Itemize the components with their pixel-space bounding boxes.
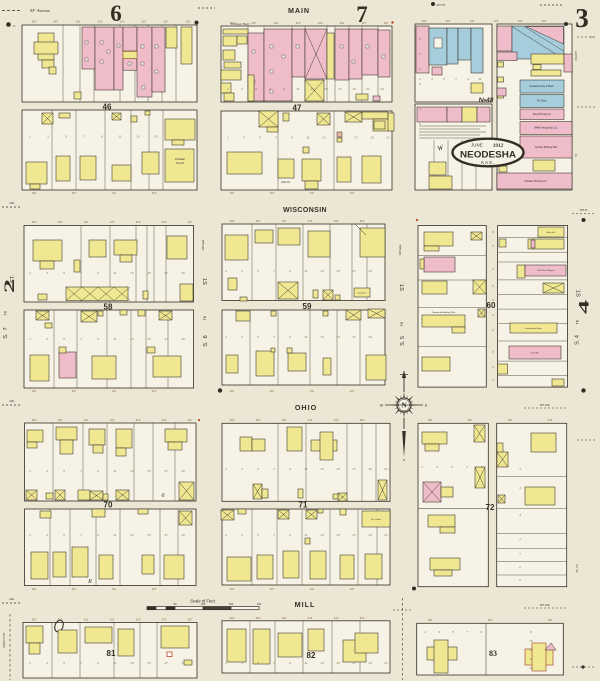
- svg-text:1: 1: [29, 661, 31, 665]
- svg-text:19: 19: [368, 335, 372, 339]
- svg-text:8: 8: [492, 328, 494, 332]
- svg-text:21: 21: [385, 136, 390, 140]
- svg-text:4: 4: [577, 299, 593, 314]
- svg-text:623: 623: [340, 21, 345, 25]
- svg-text:17: 17: [164, 661, 168, 665]
- svg-text:9: 9: [467, 77, 469, 81]
- svg-text:13: 13: [130, 337, 134, 341]
- svg-text:17: 17: [352, 269, 356, 273]
- svg-text:15: 15: [336, 661, 340, 665]
- svg-text:6: 6: [162, 493, 165, 499]
- svg-text:14: 14: [529, 657, 533, 661]
- svg-text:72: 72: [486, 503, 495, 512]
- svg-text:611: 611: [310, 390, 315, 393]
- svg-text:R: R: [87, 579, 92, 585]
- svg-text:603: 603: [230, 418, 235, 422]
- svg-text:Christian: Christian: [175, 157, 186, 161]
- svg-text:11: 11: [304, 533, 307, 537]
- svg-text:5: 5: [492, 298, 494, 302]
- svg-text:615: 615: [152, 588, 157, 591]
- svg-text:623: 623: [142, 20, 147, 24]
- svg-text:1: 1: [421, 465, 423, 469]
- svg-text:3: 3: [46, 533, 48, 537]
- svg-text:611: 611: [282, 219, 287, 223]
- svg-text:615: 615: [110, 418, 115, 422]
- svg-text:5: 5: [65, 135, 67, 139]
- svg-text:AVE.: AVE.: [9, 598, 15, 601]
- svg-text:Cyclone Bottling Wks: Cyclone Bottling Wks: [535, 146, 558, 149]
- svg-text:15: 15: [324, 87, 328, 91]
- svg-text:21: 21: [383, 533, 388, 537]
- svg-text:607: 607: [256, 418, 261, 422]
- svg-text:13: 13: [136, 135, 140, 139]
- svg-text:1: 1: [419, 77, 421, 81]
- svg-text:12: 12: [529, 648, 533, 652]
- svg-text:603: 603: [230, 219, 235, 223]
- svg-text:619: 619: [318, 21, 323, 25]
- svg-text:1: 1: [225, 269, 227, 273]
- svg-text:FOURTH: FOURTH: [575, 51, 578, 61]
- svg-text:627: 627: [164, 20, 169, 24]
- svg-text:TH: TH: [4, 310, 8, 315]
- svg-text:7: 7: [273, 661, 275, 665]
- svg-text:5: 5: [451, 465, 453, 469]
- svg-text:81: 81: [107, 649, 116, 658]
- svg-text:S. 5: S. 5: [400, 336, 406, 346]
- svg-text:9: 9: [492, 230, 494, 234]
- svg-text:603: 603: [230, 616, 235, 620]
- svg-text:Tel. Exch.: Tel. Exch.: [537, 100, 548, 103]
- svg-text:3: 3: [46, 337, 48, 341]
- svg-text:M° Avenue: M° Avenue: [29, 8, 50, 13]
- svg-text:19: 19: [368, 661, 372, 665]
- svg-text:2: 2: [518, 565, 521, 569]
- svg-text:82: 82: [307, 651, 316, 660]
- svg-text:603: 603: [32, 588, 37, 591]
- svg-text:11: 11: [113, 533, 116, 537]
- svg-text:1: 1: [29, 337, 31, 341]
- svg-text:619: 619: [518, 19, 523, 23]
- svg-text:7: 7: [466, 465, 468, 469]
- svg-text:3: 3: [519, 467, 521, 471]
- svg-text:3: 3: [575, 3, 589, 33]
- svg-text:607: 607: [72, 588, 77, 591]
- svg-text:15: 15: [147, 661, 151, 665]
- svg-text:4TH ST: 4TH ST: [437, 4, 446, 7]
- svg-text:s: s: [403, 457, 405, 462]
- svg-text:21: 21: [365, 87, 370, 91]
- svg-text:611: 611: [282, 616, 287, 620]
- svg-text:15: 15: [336, 335, 340, 339]
- svg-text:9: 9: [492, 365, 494, 369]
- svg-text:19: 19: [368, 269, 372, 273]
- svg-text:5: 5: [63, 271, 65, 275]
- svg-text:611: 611: [310, 192, 315, 195]
- svg-text:5: 5: [259, 136, 261, 140]
- svg-text:611: 611: [470, 19, 475, 23]
- svg-text:JUNE: JUNE: [471, 143, 483, 148]
- svg-text:11: 11: [478, 77, 481, 81]
- svg-text:3: 3: [241, 467, 243, 471]
- svg-text:611: 611: [84, 418, 89, 422]
- svg-text:9: 9: [289, 533, 291, 537]
- svg-text:607: 607: [58, 418, 63, 422]
- svg-text:9: 9: [481, 465, 483, 469]
- svg-text:4: 4: [492, 378, 494, 382]
- svg-text:3: 3: [241, 335, 243, 339]
- svg-text:TH: TH: [400, 321, 404, 326]
- svg-text:603: 603: [230, 588, 235, 591]
- svg-text:Neodesha Fdy & Mach.: Neodesha Fdy & Mach.: [530, 85, 555, 88]
- svg-text:1: 1: [227, 136, 229, 140]
- svg-text:4: 4: [519, 486, 521, 490]
- svg-text:611: 611: [112, 390, 117, 393]
- svg-text:1: 1: [225, 467, 227, 471]
- svg-text:603: 603: [32, 390, 37, 393]
- svg-text:623: 623: [360, 219, 365, 223]
- svg-text:607: 607: [270, 192, 275, 195]
- svg-text:5: 5: [257, 335, 259, 339]
- svg-text:9: 9: [492, 284, 494, 288]
- svg-text:607: 607: [54, 20, 59, 24]
- svg-text:5: 5: [419, 37, 421, 41]
- svg-text:13: 13: [130, 533, 134, 537]
- svg-text:7: 7: [80, 337, 82, 341]
- svg-text:3: 3: [243, 136, 245, 140]
- svg-text:15: 15: [147, 533, 151, 537]
- svg-text:1: 1: [225, 335, 227, 339]
- svg-text:15: 15: [154, 135, 158, 139]
- svg-text:13: 13: [310, 87, 314, 91]
- svg-text:7: 7: [80, 661, 82, 665]
- svg-text:603: 603: [32, 220, 37, 224]
- svg-text:17: 17: [352, 661, 356, 665]
- svg-text:17: 17: [352, 467, 356, 471]
- svg-text:9: 9: [291, 136, 293, 140]
- svg-text:13: 13: [320, 269, 324, 273]
- svg-text:MAIN: MAIN: [288, 6, 310, 15]
- svg-text:619: 619: [136, 220, 141, 224]
- svg-text:17: 17: [164, 469, 168, 473]
- svg-text:603: 603: [32, 618, 37, 622]
- svg-text:17: 17: [338, 87, 342, 91]
- svg-text:11: 11: [304, 335, 307, 339]
- svg-text:603: 603: [32, 20, 37, 24]
- svg-text:8: 8: [530, 630, 532, 634]
- svg-text:3: 3: [46, 469, 48, 473]
- svg-text:11: 11: [113, 337, 116, 341]
- svg-text:2: 2: [418, 52, 421, 56]
- svg-text:7: 7: [519, 552, 521, 556]
- svg-text:603: 603: [428, 418, 433, 422]
- svg-text:9: 9: [289, 467, 291, 471]
- svg-text:607: 607: [58, 220, 63, 224]
- svg-text:100: 100: [201, 602, 206, 606]
- svg-text:7: 7: [273, 533, 275, 537]
- svg-text:623: 623: [162, 220, 167, 224]
- svg-text:8: 8: [419, 67, 421, 71]
- svg-text:615: 615: [494, 19, 499, 23]
- svg-text:S. 7: S. 7: [3, 327, 9, 338]
- svg-text:3: 3: [419, 107, 421, 111]
- svg-text:13: 13: [320, 661, 324, 665]
- svg-text:WISCONSIN: WISCONSIN: [283, 207, 327, 214]
- svg-text:OIL CO.: OIL CO.: [576, 563, 579, 572]
- svg-text:9: 9: [97, 469, 99, 473]
- svg-text:607: 607: [72, 192, 77, 195]
- svg-text:ST.: ST.: [575, 153, 578, 157]
- svg-text:1: 1: [424, 630, 426, 634]
- svg-text:Dry Clean: Dry Clean: [371, 518, 382, 521]
- svg-text:3: 3: [46, 271, 48, 275]
- svg-text:17: 17: [164, 533, 168, 537]
- svg-text:1: 1: [29, 135, 31, 139]
- svg-text:5: 5: [492, 244, 494, 248]
- svg-text:623: 623: [360, 418, 365, 422]
- svg-text:3: 3: [47, 135, 49, 139]
- svg-text:21: 21: [383, 661, 388, 665]
- svg-text:7: 7: [455, 77, 457, 81]
- svg-text:11: 11: [113, 271, 116, 275]
- svg-text:70: 70: [104, 501, 113, 510]
- svg-text:615: 615: [350, 390, 355, 393]
- svg-text:3: 3: [431, 77, 433, 81]
- svg-text:615: 615: [308, 616, 313, 620]
- svg-text:9: 9: [283, 87, 285, 91]
- svg-text:Cong.Ch.: Cong.Ch.: [357, 293, 367, 295]
- svg-text:619: 619: [334, 219, 339, 223]
- svg-text:611: 611: [112, 192, 117, 195]
- svg-text:3: 3: [438, 630, 440, 634]
- svg-text:1912: 1912: [493, 143, 504, 149]
- svg-text:607: 607: [58, 618, 63, 622]
- svg-text:615: 615: [308, 418, 313, 422]
- svg-text:627: 627: [188, 618, 193, 622]
- svg-text:4TH AVE.: 4TH AVE.: [540, 604, 551, 607]
- svg-text:13: 13: [130, 271, 134, 275]
- svg-text:19: 19: [181, 469, 185, 473]
- svg-text:5: 5: [255, 87, 257, 91]
- svg-text:5: 5: [419, 82, 421, 86]
- svg-text:19: 19: [370, 136, 374, 140]
- svg-text:4TH PL.: 4TH PL.: [580, 209, 589, 212]
- svg-text:83: 83: [489, 649, 497, 658]
- svg-text:619: 619: [334, 418, 339, 422]
- svg-text:611: 611: [84, 618, 89, 622]
- svg-text:627: 627: [188, 418, 193, 422]
- svg-text:3: 3: [241, 269, 243, 273]
- svg-text:13: 13: [320, 467, 324, 471]
- svg-text:58: 58: [104, 303, 113, 312]
- svg-text:3: 3: [436, 465, 438, 469]
- svg-text:603: 603: [428, 618, 433, 622]
- svg-text:611: 611: [548, 618, 553, 622]
- svg-text:5: 5: [257, 533, 259, 537]
- svg-text:19: 19: [181, 271, 185, 275]
- svg-text:ST.: ST.: [400, 283, 406, 291]
- svg-text:7: 7: [273, 467, 275, 471]
- svg-text:13: 13: [322, 136, 326, 140]
- svg-text:TH: TH: [576, 319, 580, 324]
- svg-text:59: 59: [303, 302, 312, 311]
- svg-text:9: 9: [289, 335, 291, 339]
- svg-text:623: 623: [542, 19, 547, 23]
- svg-text:1: 1: [519, 537, 521, 541]
- svg-text:NEODESHA: NEODESHA: [460, 150, 517, 160]
- svg-text:623: 623: [162, 618, 167, 622]
- svg-text:15: 15: [336, 533, 340, 537]
- svg-text:15: 15: [338, 136, 342, 140]
- svg-text:11: 11: [296, 87, 299, 91]
- svg-text:615: 615: [110, 220, 115, 224]
- svg-text:100'wide: 100'wide: [201, 239, 205, 250]
- svg-text:19: 19: [181, 337, 185, 341]
- svg-text:1: 1: [492, 267, 494, 271]
- svg-text:1: 1: [29, 469, 31, 473]
- svg-text:607: 607: [270, 588, 275, 591]
- svg-text:11: 11: [118, 135, 121, 139]
- svg-text:19: 19: [181, 661, 185, 665]
- svg-text:627: 627: [188, 220, 193, 224]
- svg-text:603: 603: [230, 192, 235, 195]
- svg-text:13: 13: [130, 469, 134, 473]
- svg-text:619: 619: [334, 616, 339, 620]
- svg-text:23: 23: [379, 87, 384, 91]
- svg-text:AVE.: AVE.: [9, 400, 15, 403]
- svg-text:7: 7: [269, 87, 271, 91]
- svg-text:7: 7: [466, 630, 468, 634]
- svg-text:10: 10: [529, 639, 533, 643]
- svg-text:N: N: [401, 402, 406, 410]
- svg-text:603: 603: [32, 192, 37, 195]
- svg-text:KAS.: KAS.: [481, 160, 495, 165]
- svg-text:1: 1: [225, 533, 227, 537]
- svg-text:15: 15: [147, 271, 151, 275]
- svg-text:19: 19: [368, 467, 372, 471]
- svg-text:9: 9: [480, 630, 482, 634]
- svg-text:SEVENTH ST.: SEVENTH ST.: [3, 632, 6, 648]
- svg-text:11: 11: [304, 661, 307, 665]
- svg-text:3: 3: [241, 661, 243, 665]
- svg-text:615: 615: [350, 588, 355, 591]
- svg-text:607: 607: [252, 21, 257, 25]
- svg-text:9: 9: [419, 122, 421, 126]
- svg-text:1: 1: [29, 271, 31, 275]
- svg-text:OHIO: OHIO: [295, 403, 317, 412]
- svg-text:611: 611: [310, 588, 315, 591]
- svg-text:607: 607: [72, 390, 77, 393]
- svg-text:ST.: ST.: [10, 275, 16, 283]
- svg-text:631: 631: [186, 20, 191, 24]
- svg-text:603: 603: [422, 19, 427, 23]
- svg-text:ST.: ST.: [577, 289, 583, 297]
- svg-text:607: 607: [270, 390, 275, 393]
- svg-text:619: 619: [136, 618, 141, 622]
- svg-text:15: 15: [147, 469, 151, 473]
- svg-text:1: 1: [29, 533, 31, 537]
- svg-text:627: 627: [362, 21, 367, 25]
- svg-text:ST.: ST.: [203, 277, 209, 285]
- svg-text:13: 13: [130, 661, 134, 665]
- svg-text:615: 615: [350, 192, 355, 195]
- svg-text:2: 2: [491, 313, 494, 317]
- svg-text:15: 15: [336, 269, 340, 273]
- svg-text:9: 9: [97, 337, 99, 341]
- svg-text:5: 5: [452, 630, 454, 634]
- svg-text:TH: TH: [203, 315, 207, 320]
- svg-text:619: 619: [120, 20, 125, 24]
- svg-text:19: 19: [352, 87, 356, 91]
- svg-text:615: 615: [308, 219, 313, 223]
- svg-text:60: 60: [487, 301, 496, 310]
- svg-text:11: 11: [113, 469, 116, 473]
- svg-text:46: 46: [103, 103, 112, 112]
- svg-text:5: 5: [63, 469, 65, 473]
- svg-text:17: 17: [164, 271, 168, 275]
- svg-text:9: 9: [289, 661, 291, 665]
- svg-text:Kleidan Printing Co.: Kleidan Printing Co.: [525, 179, 548, 183]
- svg-text:623: 623: [360, 616, 365, 620]
- svg-text:15: 15: [336, 467, 340, 471]
- svg-text:S. 6: S. 6: [203, 335, 209, 346]
- svg-text:19: 19: [368, 533, 372, 537]
- svg-text:5: 5: [63, 661, 65, 665]
- svg-text:607: 607: [256, 616, 261, 620]
- svg-text:11: 11: [304, 269, 307, 273]
- svg-text:7: 7: [275, 136, 277, 140]
- svg-text:1: 1: [225, 661, 227, 665]
- svg-text:603: 603: [32, 418, 37, 422]
- svg-text:6: 6: [519, 578, 521, 582]
- svg-text:9: 9: [97, 533, 99, 537]
- svg-text:7: 7: [80, 533, 82, 537]
- svg-text:Telep.Printing Co.: Telep.Printing Co.: [533, 113, 552, 116]
- svg-text:9: 9: [97, 661, 99, 665]
- svg-text:11: 11: [113, 661, 116, 665]
- svg-text:611: 611: [112, 588, 117, 591]
- svg-text:607: 607: [256, 219, 261, 223]
- svg-text:17: 17: [354, 136, 358, 140]
- svg-text:16: 16: [529, 666, 533, 670]
- svg-text:W.F.Price Wagon: W.F.Price Wagon: [538, 269, 555, 272]
- svg-text:19: 19: [181, 533, 185, 537]
- svg-text:3: 3: [241, 533, 243, 537]
- svg-text:3: 3: [241, 87, 243, 91]
- svg-text:607: 607: [488, 618, 493, 622]
- svg-text:Ware Ho.: Ware Ho.: [546, 231, 556, 234]
- svg-text:611: 611: [76, 20, 81, 24]
- svg-text:607: 607: [446, 19, 451, 23]
- svg-text:17: 17: [164, 337, 168, 341]
- svg-text:100'wide: 100'wide: [398, 244, 402, 255]
- svg-text:1: 1: [227, 87, 229, 91]
- svg-text:17: 17: [352, 533, 356, 537]
- svg-text:7: 7: [273, 335, 275, 339]
- svg-text:№48: №48: [479, 97, 494, 104]
- svg-text:615: 615: [152, 390, 157, 393]
- svg-text:9: 9: [101, 135, 103, 139]
- svg-text:5: 5: [257, 661, 259, 665]
- svg-text:Church: Church: [176, 161, 185, 165]
- svg-text:615: 615: [296, 21, 301, 25]
- svg-text:21: 21: [383, 467, 388, 471]
- svg-text:615: 615: [110, 618, 115, 622]
- svg-text:15: 15: [147, 337, 151, 341]
- svg-text:200: 200: [257, 602, 262, 606]
- svg-text:7: 7: [80, 271, 82, 275]
- svg-text:611: 611: [508, 418, 513, 422]
- svg-text:S. 4: S. 4: [575, 335, 581, 345]
